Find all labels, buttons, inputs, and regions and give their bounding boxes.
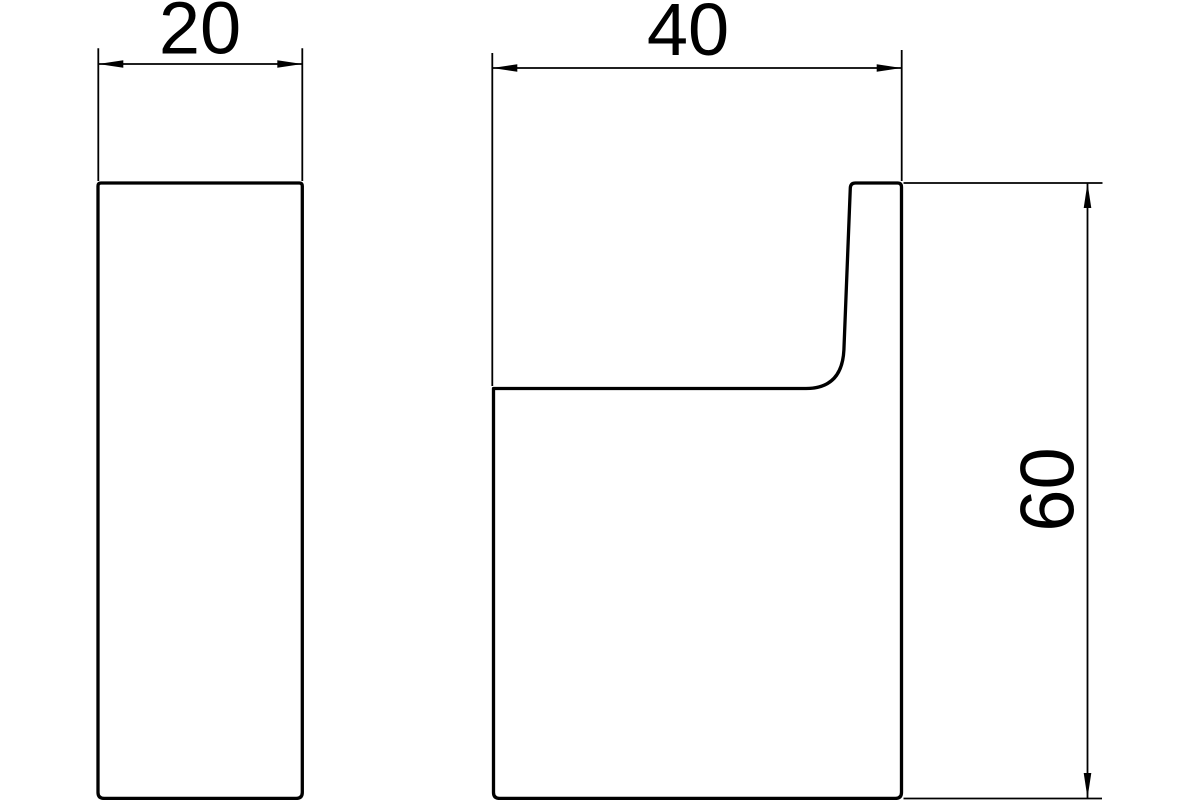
svg-text:60: 60	[1006, 447, 1091, 532]
svg-text:40: 40	[647, 0, 729, 71]
svg-text:20: 20	[159, 0, 241, 70]
